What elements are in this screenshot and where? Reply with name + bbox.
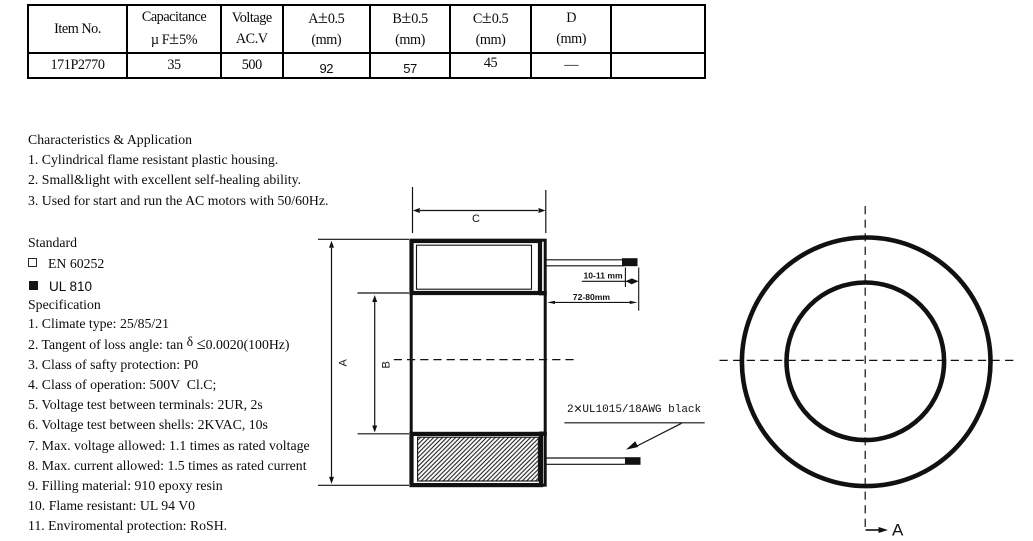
svg-text:A: A xyxy=(338,359,350,367)
svg-text:72-80mm: 72-80mm xyxy=(573,292,611,302)
svg-text:10-11 mm: 10-11 mm xyxy=(584,271,624,281)
svg-text:B: B xyxy=(381,361,393,368)
svg-text:A: A xyxy=(892,521,904,540)
svg-text:2×UL1015/18AWG black: 2×UL1015/18AWG black xyxy=(567,403,702,419)
svg-text:C: C xyxy=(472,213,480,225)
